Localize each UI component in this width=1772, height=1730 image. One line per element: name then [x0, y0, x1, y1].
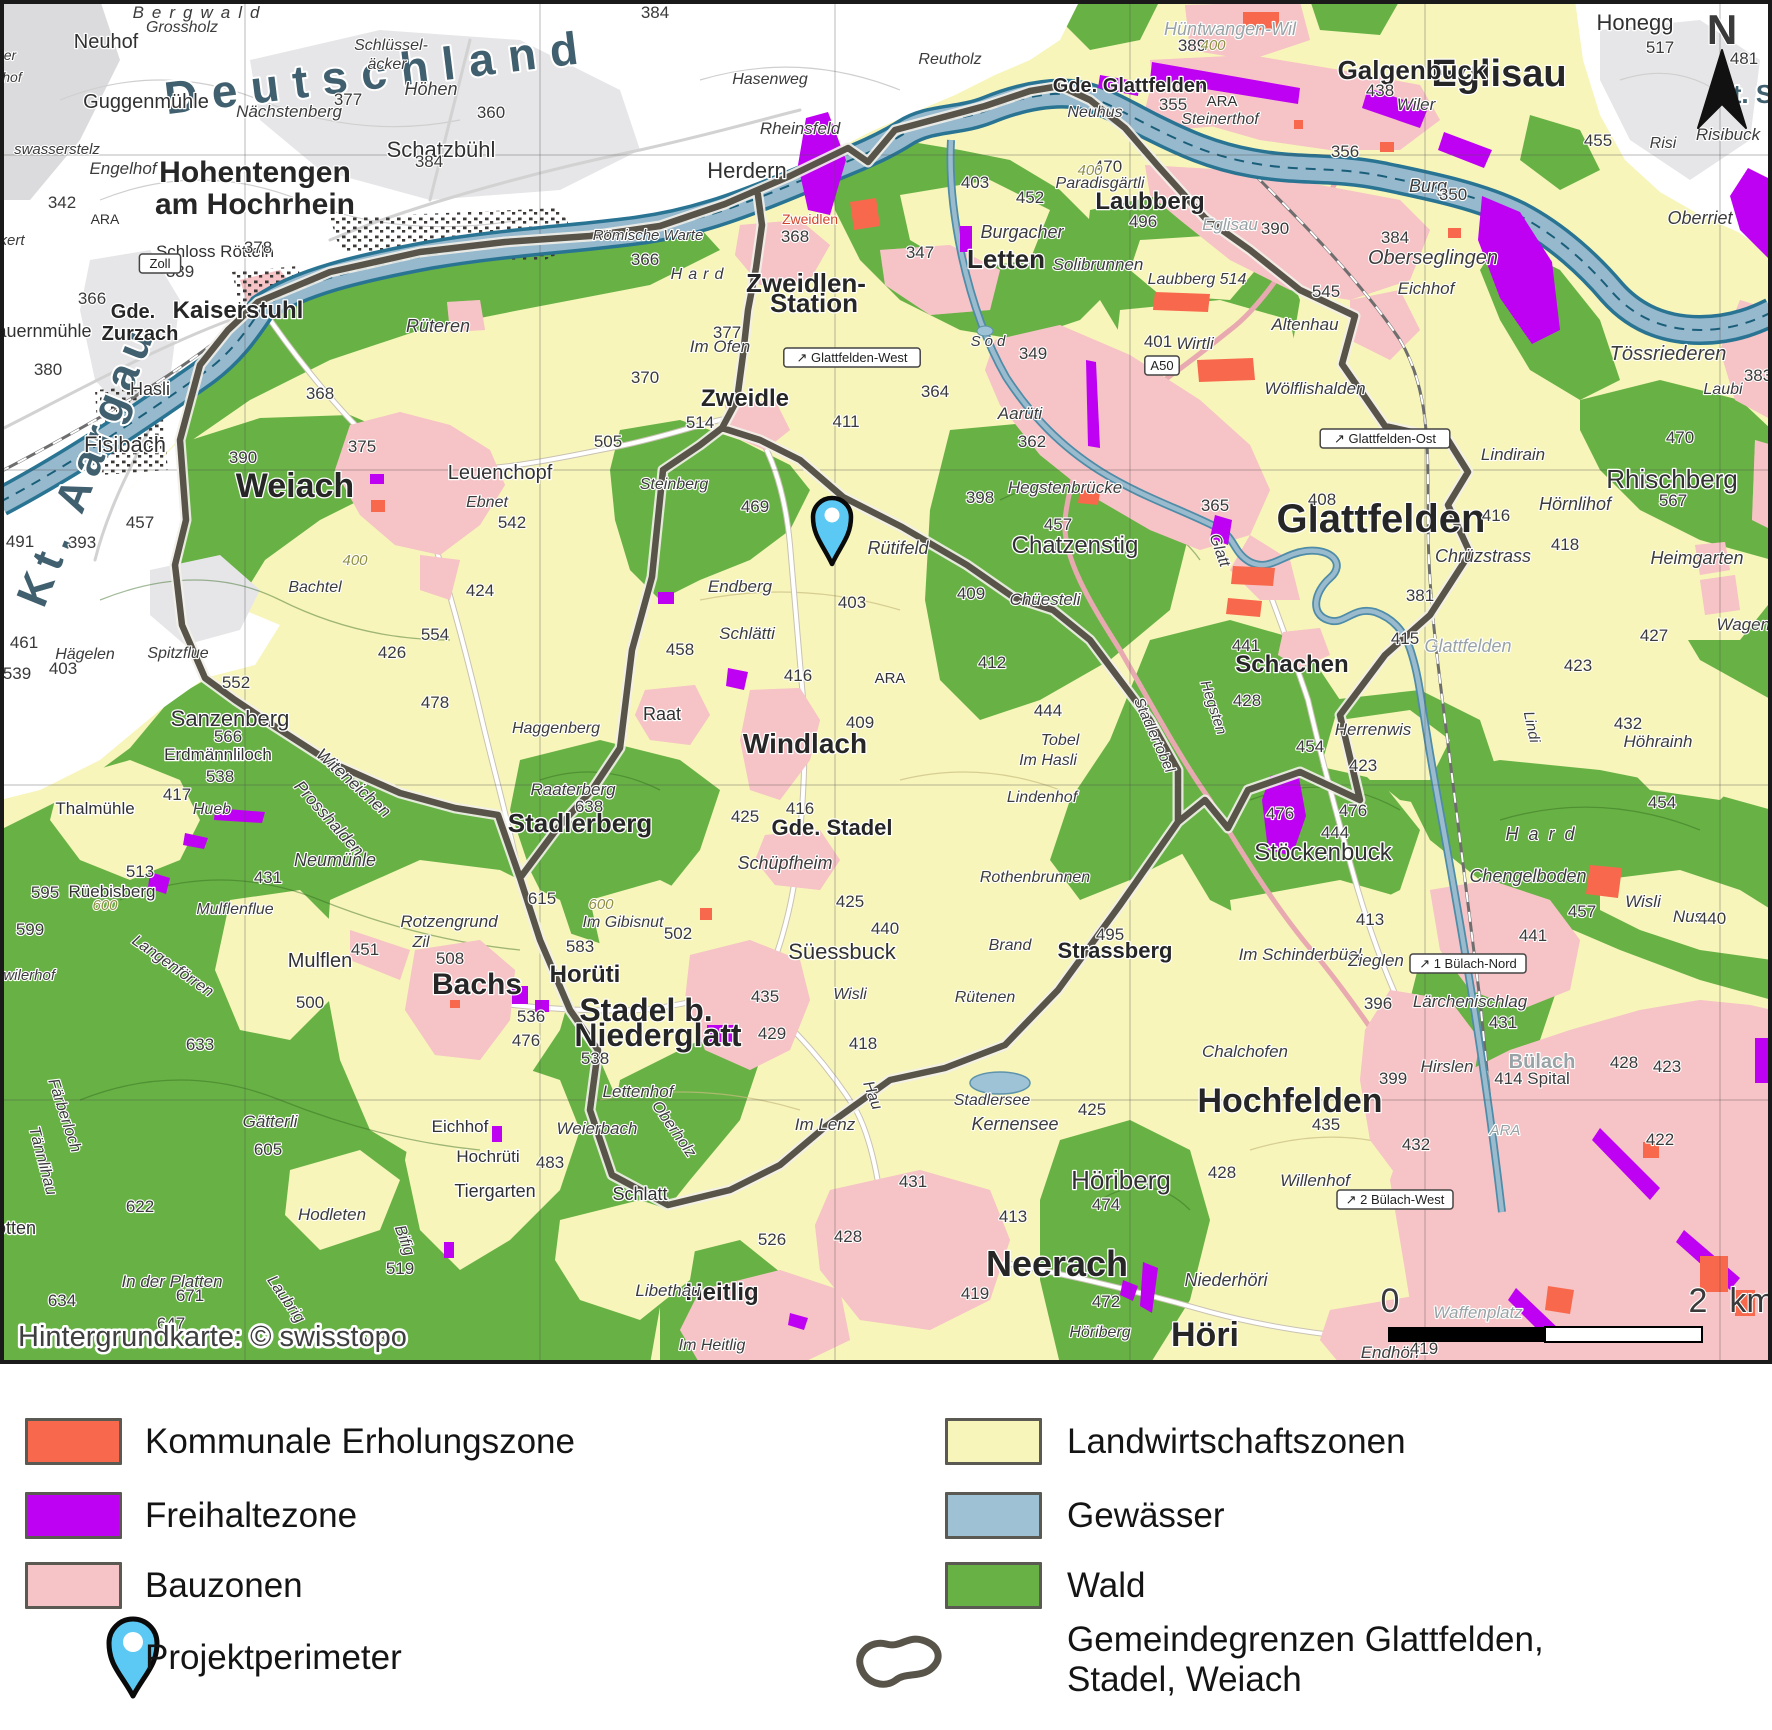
map-label: 634 [48, 1291, 76, 1310]
map-label: 412 [978, 653, 1006, 672]
map-label: 416 [1482, 506, 1510, 525]
map-label: 454 [1296, 737, 1324, 756]
svg-text:Zoll: Zoll [150, 256, 171, 271]
map-label: swasserstelz [14, 141, 100, 158]
map-label: 495 [1096, 925, 1124, 944]
map-label: Herdern [707, 158, 786, 183]
map-label: Risibuck [1696, 125, 1762, 144]
road-sign: ↗ Glattfelden-Ost [1320, 429, 1450, 448]
map-label: Bachtel [288, 579, 342, 596]
map-label: Burgacher [980, 222, 1064, 242]
map-label: Haggenberg [512, 720, 600, 737]
map-label: Höriberg [1069, 1324, 1130, 1341]
map-label: Kernensee [971, 1114, 1058, 1134]
stadlersee-lake [970, 1072, 1030, 1094]
legend-swatch-wald [945, 1562, 1042, 1609]
map-label: 423 [1564, 656, 1592, 675]
map-label: Waffenplatz [1433, 1303, 1523, 1322]
map-label: 538 [206, 767, 234, 786]
map-label: Leuenchopf [448, 462, 553, 484]
map-label: Hörnlihof [1539, 494, 1613, 514]
map-label: Im Gibisnut [583, 914, 664, 931]
map-label: Eichhof [432, 1117, 489, 1136]
map-label: 384 [1381, 228, 1409, 247]
map-label: 566 [214, 727, 242, 746]
map-label: Horüti [550, 961, 621, 988]
map-label: 435 [751, 987, 779, 1006]
map-label: Rütifeld [867, 538, 929, 558]
map-label: Mulflen [288, 950, 352, 972]
map-label: Höriberg [1071, 1165, 1171, 1195]
map-label: Zil [412, 934, 430, 951]
map-label: 474 [1092, 1195, 1120, 1214]
map-label: 508 [436, 949, 464, 968]
map-label: 536 [517, 1007, 545, 1026]
map-label: Hohentengen [159, 156, 351, 189]
map-label: 444 [1034, 701, 1062, 720]
map-label: 470 [1666, 428, 1694, 447]
map-label: Wagenb [1716, 615, 1772, 634]
map-label: Höhen [404, 79, 457, 99]
map-label: Lärchenischlag [1413, 992, 1528, 1011]
map-label: 438 [1366, 81, 1394, 100]
map-label: 377 [713, 323, 741, 342]
map-label: Gätterli [243, 1112, 299, 1131]
map-label: 399 [1379, 1069, 1407, 1088]
map-label: 567 [1659, 491, 1687, 510]
map-label: Spitzflue [147, 645, 208, 662]
map-label: 545 [1312, 282, 1340, 301]
map-label: 403 [838, 593, 866, 612]
map-label: Thalmühle [55, 799, 134, 818]
map-label: Hueb [193, 801, 231, 818]
map-label: Hard [1505, 824, 1584, 844]
map-label: Libethau [635, 1281, 701, 1300]
map-label: Honegg [1596, 10, 1673, 35]
map-label: Schlatt [612, 1184, 667, 1204]
legend: Kommunale Erholungszone Freihaltezone Ba… [0, 1364, 1772, 1730]
map-label: 418 [1551, 535, 1579, 554]
scale-two: 2 [1689, 1282, 1708, 1320]
map-label: 417 [163, 785, 191, 804]
map-label: Laubberg [1095, 188, 1204, 215]
map-label: 356 [1331, 142, 1359, 161]
page: DeutschlandKt. Aargaut. SHohentengenam H… [0, 0, 1772, 1730]
legend-label-erholungszone: Kommunale Erholungszone [145, 1422, 575, 1462]
map-label: Erdmännliloch [164, 745, 272, 764]
map-label: Oberseglingen [1368, 247, 1498, 269]
map-label: 416 [784, 666, 812, 685]
map-label: Wiler [1397, 95, 1437, 114]
map-label: Chrüzstrass [1435, 546, 1531, 566]
map-label: 403 [49, 659, 77, 678]
map-label: Hegstenbrücke [1008, 478, 1122, 497]
map-label: 427 [1640, 626, 1668, 645]
map-label: 411 [832, 412, 859, 431]
map-label: Windlach [743, 728, 867, 759]
map-label: ttwilerhof [0, 967, 57, 984]
map-label: 432 [1614, 714, 1642, 733]
map-label: Station [770, 288, 858, 318]
map-attribution: Hintergrundkarte: © swisstopo [18, 1321, 407, 1353]
map-label: 502 [664, 924, 692, 943]
map-label: 368 [781, 227, 809, 246]
map-label: Herrenwis [1335, 720, 1412, 739]
map-label: 413 [999, 1207, 1027, 1226]
map-label: Engelhof [89, 159, 158, 178]
scale-unit: km [1729, 1282, 1772, 1320]
map-label: 342 [48, 193, 76, 212]
map-label: 441 [1232, 636, 1260, 655]
map-label: Eglisau [1202, 215, 1258, 234]
map-label: 539 [3, 664, 31, 683]
map-label: Zweidle [701, 385, 789, 412]
map-label: Im Schinderbüel [1239, 945, 1363, 964]
map-label: Gde. Glattfelden [1053, 75, 1207, 97]
map-label: 370 [631, 368, 659, 387]
map-label: Stöckenbuck [1254, 839, 1392, 866]
map-label: 513 [126, 862, 154, 881]
legend-label-wald: Wald [1067, 1566, 1145, 1606]
legend-swatch-freihaltezone [25, 1492, 122, 1539]
svg-text:↗ Glattfelden-Ost: ↗ Glattfelden-Ost [1334, 431, 1436, 446]
map-label: 375 [348, 437, 376, 456]
map-label: 458 [666, 640, 694, 659]
map-label: Hochfelden [1197, 1082, 1382, 1120]
map-label: Laubi [1703, 381, 1743, 398]
map-label: Chalchofen [1202, 1042, 1288, 1061]
map-label: Im Heitlig [679, 1337, 746, 1354]
map-label: 432 [1402, 1135, 1430, 1154]
map-label: Hodleten [298, 1205, 366, 1224]
map-label: 457 [1044, 515, 1072, 534]
map-label: Bachs [432, 968, 522, 1001]
map-label: 349 [1019, 344, 1047, 363]
map-label: 455 [1584, 131, 1612, 150]
svg-text:↗ 1 Bülach-Nord: ↗ 1 Bülach-Nord [1419, 956, 1517, 971]
legend-label-bauzonen: Bauzonen [145, 1566, 303, 1606]
map-label: 428 [1233, 691, 1261, 710]
map-label: 360 [477, 103, 505, 122]
map-label: Schlätti [719, 624, 776, 643]
map-label: 409 [846, 713, 874, 732]
map-label: 428 [834, 1227, 862, 1246]
map-label: 457 [1568, 902, 1596, 921]
map-label: 441 [1519, 926, 1547, 945]
map-label: Höhrainh [1624, 732, 1693, 751]
map-label: Höri [1171, 1316, 1239, 1354]
map-label: Stadlersee [954, 1092, 1031, 1109]
map-label: 500 [296, 993, 324, 1012]
map-label: ARA [1207, 93, 1238, 110]
map-label: 423 [1653, 1057, 1681, 1076]
map-label: 350 [1439, 185, 1467, 204]
map-label: 428 [1610, 1053, 1638, 1072]
map-label: 454 [1648, 793, 1676, 812]
legend-swatch-gewaesser [945, 1492, 1042, 1539]
map-label: Neuhof [74, 31, 139, 53]
map-label: 491 [6, 532, 34, 551]
legend-swatch-landwirtschaft [945, 1418, 1042, 1465]
map-label: Brand [989, 937, 1033, 954]
map-label: Aarüti [997, 404, 1044, 423]
road-sign: ↗ Glattfelden-West [784, 348, 920, 367]
map-label: 408 [1308, 490, 1336, 509]
map-label: 419 [961, 1284, 989, 1303]
map-label: 431 [254, 868, 282, 887]
map-label: 542 [498, 513, 526, 532]
map-label: 365 [1201, 496, 1229, 515]
map-label: Letten [967, 244, 1045, 274]
map-label: Raat [643, 704, 681, 724]
map-label: Solibrunnen [1053, 255, 1144, 274]
road-sign: A50 [1145, 356, 1179, 375]
map-label: 444 [1321, 823, 1349, 842]
map-label: 476 [1266, 804, 1294, 823]
map-label: 400 [1077, 162, 1103, 179]
map-label: Gde. Stadel [771, 815, 892, 840]
map-label: 368 [306, 384, 334, 403]
map-area: DeutschlandKt. Aargaut. SHohentengenam H… [0, 0, 1772, 1364]
map-label: 519 [386, 1259, 414, 1278]
map-label: Niederhöri [1184, 1270, 1268, 1290]
map-label: Altenhau [1270, 315, 1339, 334]
map-label: 605 [254, 1140, 282, 1159]
map-label: ARA [91, 211, 120, 227]
svg-text:↗ 2 Bülach-West: ↗ 2 Bülach-West [1346, 1192, 1445, 1207]
map-label: 600 [588, 896, 614, 913]
map-label: Tobel [1041, 732, 1080, 749]
map-label: Kaiserstuhl [173, 297, 304, 324]
map-label: otten [0, 1218, 36, 1238]
legend-label-landwirtschaft: Landwirtschaftszonen [1067, 1422, 1406, 1462]
map-label: Zweidlen [782, 211, 838, 227]
map-label: 457 [126, 513, 154, 532]
map-label: Reutholz [918, 51, 981, 68]
map-label: 380 [34, 360, 62, 379]
map-label: Galgenbuck [1338, 55, 1487, 85]
map-label: Raaterberg [530, 780, 616, 799]
map-label: Tiergarten [454, 1181, 535, 1201]
map-label: 355 [1159, 95, 1187, 114]
map-label: 378 [244, 238, 272, 257]
map-label: Eichhof [1398, 279, 1457, 298]
map-label: Gde. [111, 301, 155, 323]
map-label: Bauernmühle [0, 321, 92, 341]
map-label: 452 [1016, 188, 1044, 207]
map-label: 422 [1646, 1130, 1674, 1149]
map-label: 633 [186, 1035, 214, 1054]
map-label: Chengelboden [1469, 866, 1586, 886]
map-label: Lindirain [1481, 445, 1545, 464]
map-label: 398 [966, 488, 994, 507]
map-label: Risi [1650, 135, 1677, 152]
map-label: Guggenmühle [83, 91, 209, 113]
map-label: ARA [1489, 1122, 1521, 1139]
map-label: 416 [786, 799, 814, 818]
map-label: In der Platten [121, 1272, 222, 1291]
map-label: 409 [957, 584, 985, 603]
map-label: Weierbach [557, 1119, 638, 1138]
map-label: 472 [1092, 1292, 1120, 1311]
map-label: 478 [421, 693, 449, 712]
map-label: Endberg [708, 577, 773, 596]
map-label: Wisli [833, 986, 867, 1003]
map-label: Neerach [986, 1243, 1128, 1284]
map-label: Ebnet [466, 494, 508, 511]
map-label: Neuhus [1067, 104, 1122, 121]
map-label: Willenhof [1280, 1171, 1352, 1190]
map-label: 622 [126, 1197, 154, 1216]
map-label: 600 [92, 897, 118, 914]
svg-text:↗ Glattfelden-West: ↗ Glattfelden-West [796, 350, 907, 365]
map-label: 384 [641, 3, 669, 22]
map-label: 384 [415, 152, 443, 171]
road-sign: ↗ 2 Bülach-West [1337, 1190, 1453, 1209]
map-label: Sod [971, 333, 1010, 350]
road-sign: Zoll [139, 254, 180, 273]
map-label: 429 [758, 1024, 786, 1043]
map-label: Hasenweg [732, 71, 808, 88]
map-label: 415 [1391, 629, 1419, 648]
map-label: Steinberg [640, 476, 709, 493]
map-label: 413 [1356, 910, 1384, 929]
map-label: 401 [1144, 332, 1172, 351]
map-label: Mulflenflue [196, 901, 273, 918]
map-label: 390 [1261, 219, 1289, 238]
map-label: 423 [1349, 756, 1377, 775]
map-label: Weiach [236, 467, 354, 505]
map-label: Wölflishalden [1264, 379, 1365, 398]
map-label: Rothenbrunnen [980, 869, 1090, 886]
map-label: 425 [1078, 1100, 1106, 1119]
map-label: 476 [512, 1031, 540, 1050]
map-label: 366 [631, 250, 659, 269]
map-label: 514 [686, 413, 714, 432]
map-label: Zieglen [1347, 951, 1404, 970]
map-label: Wisli [1625, 892, 1662, 911]
map-label: 583 [566, 937, 594, 956]
map-label: Chatzenstig [1012, 532, 1139, 559]
map-label: 483 [536, 1153, 564, 1172]
map-label: 476 [1339, 801, 1367, 820]
map-label: Rheinsfeld [760, 119, 841, 138]
map-label: am Hochrhein [155, 188, 355, 221]
map-label: Lettenhof [603, 1082, 676, 1101]
map-label: 552 [222, 673, 250, 692]
map-label: Heimgarten [1650, 548, 1743, 568]
map-label: 615 [528, 889, 556, 908]
map-label: 390 [229, 448, 257, 467]
map-label: Rotzengrund [400, 912, 498, 931]
map-label: Niederglatt [574, 1017, 741, 1053]
map-label: 638 [575, 797, 603, 816]
map-label: 426 [378, 643, 406, 662]
map-label: 377 [334, 90, 362, 109]
map-label: 425 [836, 892, 864, 911]
map-label: 400 [1200, 37, 1226, 54]
map-label: 403 [961, 173, 989, 192]
map-label: 381 [1406, 586, 1434, 605]
legend-swatch-erholungszone [25, 1418, 122, 1465]
north-label: N [1707, 6, 1737, 53]
map-label: Chüesteli [1010, 590, 1082, 609]
map-label: Schlüssel- [354, 37, 428, 54]
map-label: Nächstenberg [236, 102, 342, 121]
map-label: ARA [875, 670, 906, 687]
map-label: 461 [10, 633, 38, 652]
map-label: 517 [1646, 38, 1674, 57]
map-label: 366 [78, 289, 106, 308]
legend-label-projektperimeter: Projektperimeter [145, 1638, 402, 1678]
map-label: Rhischberg [1606, 464, 1738, 494]
map-label: Hochrüti [456, 1147, 519, 1166]
map-label: 424 [466, 581, 494, 600]
map-label: 595 [31, 883, 59, 902]
map-label: Im Lenz [795, 1115, 856, 1134]
map-label: 538 [581, 1049, 609, 1068]
map-label: 400 [342, 552, 368, 569]
map-label: Oberriet [1667, 208, 1733, 228]
map-label: Rütenen [955, 989, 1016, 1006]
map-label: 428 [1208, 1163, 1236, 1182]
map-label: 469 [741, 497, 769, 516]
map-label: Im Hasli [1019, 752, 1077, 769]
map-label: Zurzach [102, 323, 179, 345]
map-label: 554 [421, 625, 449, 644]
map-label: 440 [1698, 909, 1726, 928]
map-label: Hasli [130, 379, 170, 399]
map-label: Tössriederen [1610, 343, 1727, 365]
map-label: 393 [68, 533, 96, 552]
map-label: Grossholz [146, 19, 218, 36]
map-label: 396 [1364, 994, 1392, 1013]
legend-label-freihaltezone: Freihaltezone [145, 1496, 357, 1536]
map-label: Laubberg 514 [1148, 271, 1247, 288]
map-label: 440 [871, 919, 899, 938]
map-label: 347 [906, 243, 934, 262]
map-label: 435 [1312, 1115, 1340, 1134]
map-label: Fisibach [84, 432, 166, 457]
map-label: 505 [594, 432, 622, 451]
map-label: hof [2, 69, 24, 85]
map-label: Hirslen [1421, 1057, 1474, 1076]
scale-zero: 0 [1381, 1282, 1400, 1320]
map-label: Wirtli [1176, 334, 1215, 353]
map-label: 451 [351, 940, 379, 959]
map-label: 425 [731, 807, 759, 826]
legend-label-gemeindegrenzen: Gemeindegrenzen Glattfelden, Stadel, Wei… [1067, 1620, 1544, 1700]
road-sign: ↗ 1 Bülach-Nord [1410, 954, 1526, 973]
map-label: 414 Spital [1494, 1069, 1570, 1088]
map-label: Glattfelden [1424, 636, 1511, 656]
map-label: 362 [1018, 432, 1046, 451]
map-label: 418 [849, 1034, 877, 1053]
map-label: Neumühle [294, 850, 376, 870]
legend-label-gewaesser: Gewässer [1067, 1496, 1225, 1536]
map-svg: DeutschlandKt. Aargaut. SHohentengenam H… [0, 0, 1772, 1364]
map-label: Schachen [1235, 651, 1348, 678]
map-label: 383 [1744, 366, 1772, 385]
map-label: 496 [1129, 212, 1157, 231]
map-label: Steinerthof [1181, 111, 1260, 128]
map-label: 671 [176, 1286, 204, 1305]
map-label: 599 [16, 920, 44, 939]
map-label: 431 [1489, 1013, 1517, 1032]
legend-gemeindegrenzen-icon [845, 1622, 950, 1694]
map-label: äcker [367, 56, 407, 73]
map-label: Rüteren [406, 316, 470, 336]
